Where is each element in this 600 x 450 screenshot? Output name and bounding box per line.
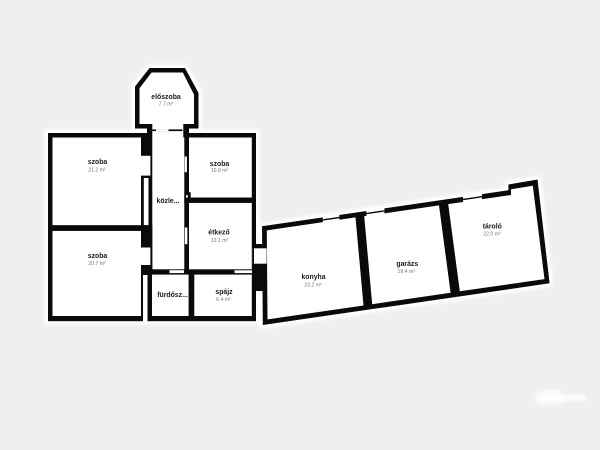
svg-text:21.2 m²: 21.2 m² [88,167,106,173]
svg-text:garázs: garázs [396,261,418,268]
svg-text:6.4 m²: 6.4 m² [216,297,231,303]
svg-text:10.9 m²: 10.9 m² [211,168,229,174]
svg-text:szoba: szoba [88,253,108,260]
svg-text:szoba: szoba [88,159,108,166]
svg-text:konyha: konyha [301,274,325,281]
svg-text:19.4 m²: 19.4 m² [398,269,416,275]
svg-text:23.2 m²: 23.2 m² [304,283,322,289]
svg-text:spájz: spájz [215,289,233,296]
svg-text:tároló: tároló [483,224,502,231]
svg-text:étkező: étkező [208,230,229,237]
svg-text:22.0 m²: 22.0 m² [483,232,501,238]
svg-text:12.1 m²: 12.1 m² [211,238,229,244]
svg-text:fürdősz...: fürdősz... [157,292,188,299]
svg-text:20.7 m²: 20.7 m² [88,261,106,267]
svg-text:előszoba: előszoba [151,94,181,101]
svg-text:közle...: közle... [157,198,180,205]
svg-text:7.7 m²: 7.7 m² [159,102,174,108]
